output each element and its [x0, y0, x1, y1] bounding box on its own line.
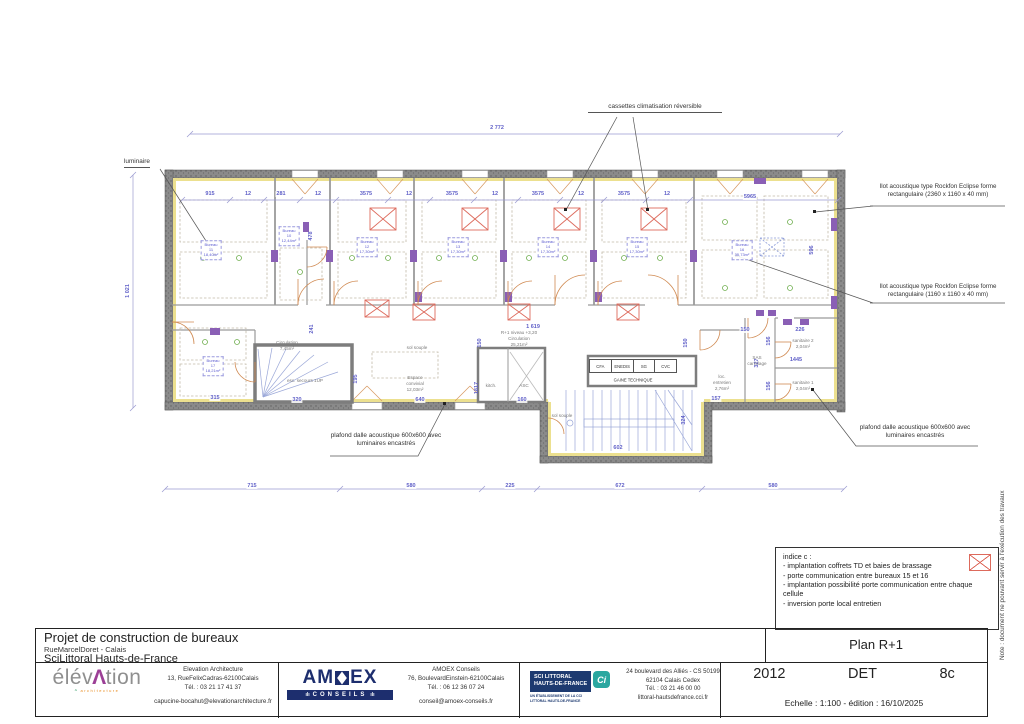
- architect-address: 13, RueFelixCadras-62100Calais: [150, 675, 276, 684]
- revision-note-item: - implantation possibilité porte communi…: [783, 580, 991, 599]
- project-meta-row: 2012 DET 8c: [722, 666, 986, 682]
- dimension-label: 478: [308, 230, 314, 241]
- dimension-label: 12: [577, 191, 585, 197]
- architect-email: capucine-bocahut@elevationarchitecture.f…: [150, 698, 276, 707]
- title-block-divider: [519, 662, 520, 718]
- gaine-technique-cells: CFAENEDISSGCVC: [589, 359, 677, 373]
- dimension-label: 640: [414, 397, 425, 403]
- sci-logo-box: SCI LITTORAL HAUTS-DE-FRANCE: [530, 671, 591, 692]
- room-label: Bureau1118,40m²: [201, 240, 222, 260]
- client-info: 24 boulevard des Alliés - CS 50199 62104…: [626, 668, 720, 703]
- dimension-label: 156: [766, 380, 772, 391]
- side-note: Note : document ne pouvant servir à l'ex…: [999, 382, 1006, 660]
- logo-text: EX: [350, 667, 377, 689]
- dimension-label: 12: [405, 191, 413, 197]
- room-label-line: 17,30m²: [541, 250, 556, 255]
- sheet-number: 8c: [939, 666, 954, 682]
- dimension-label: 602: [612, 445, 623, 451]
- room-label: Bureau1217,30m²: [357, 237, 378, 257]
- plan-label: loc.entretien2,76m²: [713, 374, 731, 392]
- plan-label: sol souple: [552, 413, 573, 419]
- annotation-ilot-acoustique-1: Ilot acoustique type Rockfon Eclipse for…: [866, 183, 1010, 199]
- logo-text: SCI LITTORAL: [534, 674, 587, 681]
- gaine-technique-label: GAINE TECHNIQUE: [612, 378, 655, 383]
- room-label-line: 17,30m²: [360, 250, 375, 255]
- logo-text: élév: [53, 666, 94, 690]
- dimension-label: 1817: [474, 381, 480, 395]
- revision-note-list: - implantation coffrets TD et baies de b…: [783, 561, 991, 608]
- dimension-label: 915: [204, 191, 215, 197]
- dimension-label: 320: [291, 397, 302, 403]
- project-title: Projet de construction de bureaux: [44, 630, 238, 645]
- dimension-label: 241: [309, 323, 315, 334]
- client-website: littoral-hautsdefrance.cci.fr: [626, 694, 720, 703]
- dimension-label: 315: [209, 395, 220, 401]
- client-phone: Tél. : 03 21 46 00 00: [626, 685, 720, 694]
- dimension-label: 580: [405, 483, 416, 489]
- plan-label: esc. secours 1UP: [287, 378, 323, 384]
- logo-text: HAUTS-DE-FRANCE: [534, 681, 587, 688]
- plan-label: Espaceconvivial12,03m²: [406, 375, 424, 393]
- room-label-line: 12,44m²: [282, 239, 297, 244]
- architect-info: Elevation Architecture 13, RueFelixCadra…: [150, 666, 276, 707]
- room-label-line: 17,30m²: [630, 250, 645, 255]
- plan-label: R+1 niveau +3,20Circulation25,21m²: [501, 330, 537, 348]
- dimension-label: 225: [504, 483, 515, 489]
- title-block-divider: [720, 662, 721, 718]
- elevation-architecture-logo: élévΛtion architecture: [46, 666, 148, 693]
- dimension-label: 150: [683, 337, 689, 348]
- dimension-label: 715: [246, 483, 257, 489]
- dimension-label: 226: [794, 327, 805, 333]
- project-client: SciLittoral Hauts-de-France: [44, 653, 178, 665]
- tech-cell-label: CVC: [655, 360, 676, 372]
- plan-label-line: sol souple: [552, 413, 573, 419]
- dimension-label: 5965: [743, 194, 757, 200]
- client-address-1: 24 boulevard des Alliés - CS 50199: [626, 668, 720, 677]
- dimension-label: 3575: [359, 191, 373, 197]
- architect-name: Elevation Architecture: [150, 666, 276, 675]
- room-label: Bureau1517,30m²: [627, 237, 648, 257]
- dimension-label: 12: [314, 191, 322, 197]
- engineer-info: AMOEX Conseils 76, BoulevardEinstein-621…: [396, 666, 516, 707]
- drawing-sheet: luminaire cassettes climatisation révers…: [0, 0, 1024, 724]
- dimension-label: 2 772: [489, 125, 505, 131]
- logo-text: tion: [106, 666, 142, 690]
- room-label: Bureau1317,30m²: [448, 237, 469, 257]
- tech-cell-label: ENEDIS: [612, 360, 634, 372]
- dimension-label: 156: [766, 335, 772, 346]
- plan-label-line: esc. secours 1UP: [287, 378, 323, 384]
- dimension-label: 12: [663, 191, 671, 197]
- plan-label-line: 25,21m²: [501, 342, 537, 348]
- room-label: Bureau1635,73m²: [732, 240, 753, 260]
- revision-note-item: - inversion porte local entretien: [783, 599, 991, 608]
- dimension-label: 580: [767, 483, 778, 489]
- plan-label: sanitaire 12,04m²: [792, 380, 813, 392]
- room-label: Bureau1417,30m²: [538, 237, 559, 257]
- engineer-phone: Tél. : 06 12 36 07 24: [396, 684, 516, 693]
- annotation-plafond-left: plafond dalle acoustique 600x600 avec lu…: [318, 432, 454, 449]
- dimension-label: 324: [681, 414, 687, 425]
- engineer-address: 76, BoulevardEinstein-62100Calais: [396, 675, 516, 684]
- annotation-luminaire: luminaire: [124, 158, 150, 168]
- dimension-label: 281: [275, 191, 286, 197]
- dimension-label: 150: [477, 337, 483, 348]
- tech-cell-label: SG: [634, 360, 656, 372]
- plan-label-line: kitch.: [486, 383, 497, 389]
- annotation-ilot-acoustique-2: Ilot acoustique type Rockfon Eclipse for…: [866, 283, 1010, 299]
- phase: DET: [848, 666, 877, 682]
- engineer-email: conseil@amoex-conseils.fr: [396, 698, 516, 707]
- room-label-line: 35,73m²: [735, 253, 750, 258]
- title-block-divider: [278, 662, 279, 718]
- dimension-label: 195: [353, 373, 359, 384]
- cube-icon: [335, 671, 349, 685]
- revision-note-title: indice c :: [783, 552, 991, 561]
- dimension-label: 3575: [445, 191, 459, 197]
- cassette-symbol-icon: [969, 554, 991, 571]
- plan-label-line: ASC: [519, 383, 528, 389]
- revision-note-item: - implantation coffrets TD et baies de b…: [783, 561, 991, 570]
- sci-littoral-logo: SCI LITTORAL HAUTS-DE-FRANCE Ci UN ÉTABL…: [530, 671, 626, 704]
- tech-cell-label: CFA: [590, 360, 612, 372]
- annotation-cassettes-clim: cassettes climatisation réversible: [588, 103, 722, 113]
- cci-icon: Ci: [593, 671, 610, 688]
- logo-text: AM: [303, 667, 335, 689]
- title-block-divider: [35, 662, 988, 663]
- project-number: 2012: [753, 666, 785, 682]
- scale-edition: Echelle : 1:100 - édition : 16/10/2025: [722, 698, 986, 708]
- dimension-label: 3575: [531, 191, 545, 197]
- plan-title: Plan R+1: [765, 637, 987, 652]
- logo-caret-icon: Λ: [92, 666, 107, 690]
- architect-phone: Tél. : 03 21 17 41 37: [150, 684, 276, 693]
- plan-label-line: 7,45m²: [276, 346, 298, 352]
- plan-label: ASC: [519, 383, 528, 389]
- plan-label-line: 2,04m²: [792, 386, 813, 392]
- room-label-line: 17,30m²: [451, 250, 466, 255]
- amoex-logo: AM EX CONSEILS: [287, 667, 393, 700]
- revision-note-item: - porte communication entre bureaux 15 e…: [783, 571, 991, 580]
- engineer-name: AMOEX Conseils: [396, 666, 516, 675]
- dimension-label: 672: [614, 483, 625, 489]
- dimension-label: 150: [739, 327, 750, 333]
- client-address-2: 62104 Calais Cedex: [626, 677, 720, 686]
- dimension-label: 12: [244, 191, 252, 197]
- dimension-label: 3575: [617, 191, 631, 197]
- room-label: Bureau1012,44m²: [279, 226, 300, 246]
- plan-label: SAScarrelage: [747, 355, 766, 367]
- annotation-plafond-right: plafond dalle acoustique 600x600 avec lu…: [850, 424, 980, 441]
- plan-label-line: sol souple: [407, 345, 428, 351]
- room-label-line: 18,40m²: [204, 253, 219, 258]
- dimension-label: 12: [491, 191, 499, 197]
- logo-subtext: UN ÉTABLISSEMENT DE LA CCI LITTORAL HAUT…: [530, 694, 626, 704]
- logo-banner: CONSEILS: [287, 690, 393, 700]
- dimension-label: 1 021: [125, 283, 131, 299]
- room-label: Bureau1718,21m²: [203, 356, 224, 376]
- plan-label-line: 2,04m²: [792, 344, 813, 350]
- revision-note-box: indice c : - implantation coffrets TD et…: [775, 547, 999, 630]
- room-label-line: 18,21m²: [206, 369, 221, 374]
- logo-subtext-line: LITTORAL HAUTS-DE-FRANCE: [530, 699, 626, 704]
- dimension-label: 160: [516, 397, 527, 403]
- plan-label-line: 12,03m²: [406, 387, 424, 393]
- plan-label: sanitaire 22,04m²: [792, 338, 813, 350]
- plan-label: Circulation7,45m²: [276, 340, 298, 352]
- plan-label-line: 2,76m²: [713, 386, 731, 392]
- plan-label-line: carrelage: [747, 361, 766, 367]
- dimension-label: 1445: [789, 357, 803, 363]
- plan-label: kitch.: [486, 383, 497, 389]
- dimension-label: 596: [809, 244, 815, 255]
- plan-label: sol souple: [407, 345, 428, 351]
- dimension-label: 157: [710, 396, 721, 402]
